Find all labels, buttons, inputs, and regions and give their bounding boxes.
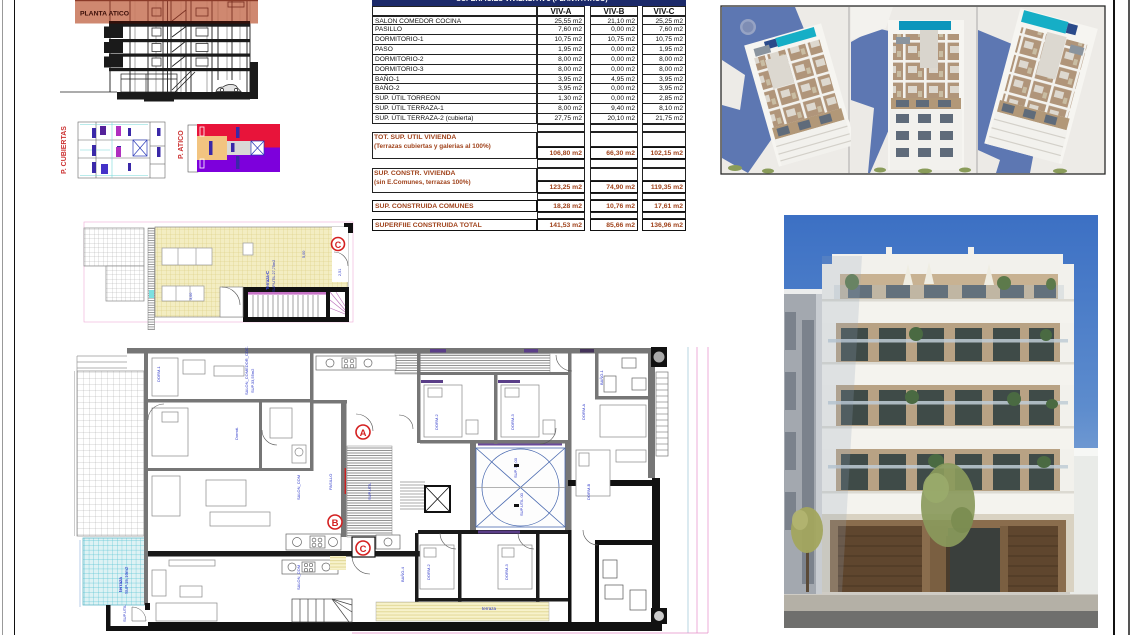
svg-text:C: C [335,240,342,250]
svg-text:DORM-B: DORM-B [586,483,591,500]
svg-text:DORM-A: DORM-A [581,403,586,420]
svg-text:5,00: 5,00 [302,251,306,258]
svg-text:SUP.UTIL 00: SUP.UTIL 00 [519,492,524,516]
svg-text:Terraza-C: Terraza-C [265,271,270,290]
svg-text:SALON_COM: SALON_COM [296,475,301,500]
svg-text:P. CUBIERTAS: P. CUBIERTAS [61,126,68,174]
svg-text:PASILLO: PASILLO [328,474,333,490]
svg-text:PLANTA ATICO: PLANTA ATICO [80,11,129,18]
svg-text:SALON_COMEDOR_COC.: SALON_COMEDOR_COC. [244,346,249,395]
svg-text:DORM-2: DORM-2 [434,413,439,430]
svg-text:DORM-2: DORM-2 [426,563,431,580]
svg-text:P. ATICO: P. ATICO [178,130,185,159]
svg-text:DORM-3: DORM-3 [510,413,515,430]
svg-text:BAÑO-4: BAÑO-4 [400,566,405,582]
svg-text:DORM-3: DORM-3 [504,563,509,580]
svg-text:SUP.33,55m2: SUP.33,55m2 [250,368,255,393]
svg-text:SUP.UTIL 27,75m2: SUP.UTIL 27,75m2 [272,260,276,292]
svg-text:A: A [360,428,367,439]
svg-text:DORM-1: DORM-1 [156,365,161,382]
svg-text:SUP.UTIL: SUP.UTIL [367,482,372,500]
svg-text:2,51: 2,51 [338,269,342,276]
svg-text:B: B [332,518,339,529]
svg-text:SUP.UTIL: SUP.UTIL [122,604,127,622]
svg-text:C: C [360,544,367,555]
svg-text:terraza: terraza [118,577,123,592]
svg-text:BAÑO-1: BAÑO-1 [599,369,604,385]
svg-text:Dormit.: Dormit. [234,427,239,440]
svg-text:SUP. 16,00: SUP. 16,00 [513,457,518,478]
svg-text:SUP.15,10m2: SUP.15,10m2 [124,566,129,594]
svg-text:SALON_COM: SALON_COM [296,565,301,590]
svg-text:3,00: 3,00 [189,293,193,300]
svg-text:terraza: terraza [482,606,497,611]
